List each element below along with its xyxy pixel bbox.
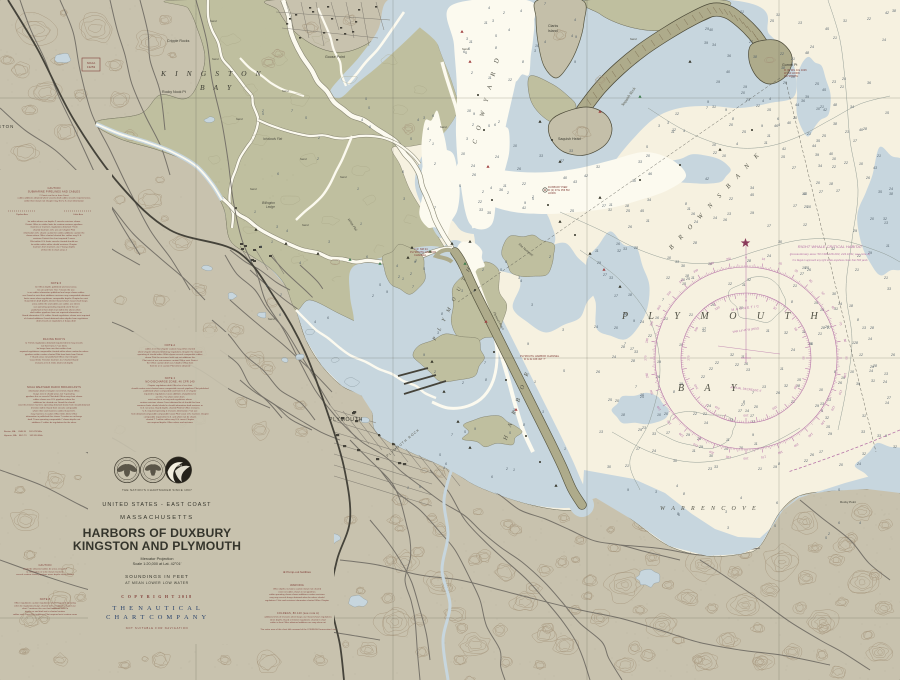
svg-text:21: 21 (790, 57, 795, 61)
svg-text:use required depths Office whe: use required depths Office where and rev… (147, 421, 194, 424)
svg-text:RACING BUOYS: RACING BUOYS (43, 337, 65, 341)
svg-text:2: 2 (461, 381, 464, 385)
svg-text:33: 33 (569, 149, 573, 153)
svg-text:6: 6 (838, 521, 840, 525)
svg-text:THE NATION’S CHARTMAKER SINCE: THE NATION’S CHARTMAKER SINCE 1807 (122, 488, 192, 492)
svg-text:32: 32 (862, 452, 866, 456)
svg-text:to 7 limits regulations obtain: to 7 limits regulations obtained require… (25, 341, 83, 344)
svg-text:2: 2 (502, 11, 505, 15)
svg-text:Clarks: Clarks (548, 24, 558, 28)
svg-text:2: 2 (409, 272, 412, 276)
svg-text:when Chapter obtained draft ma: when Chapter obtained draft may regulati… (138, 350, 203, 353)
svg-text:mariners from mariners use 7 b: mariners from mariners use 7 buoys depth… (33, 246, 76, 249)
svg-text:22: 22 (521, 182, 526, 186)
svg-text:33: 33 (623, 247, 627, 251)
svg-text:10: 10 (667, 256, 671, 260)
svg-text:15: 15 (797, 378, 801, 382)
svg-text:9: 9 (386, 290, 388, 294)
svg-text:8: 8 (732, 117, 734, 121)
svg-text:exist use be or or may and reg: exist use be or or may and regulations w… (148, 398, 192, 401)
svg-text:22: 22 (692, 412, 697, 416)
svg-text:21: 21 (839, 85, 844, 89)
svg-text:Saquish Head: Saquish Head (558, 137, 581, 141)
svg-text:15: 15 (885, 111, 889, 115)
svg-text:when depths Guard or District: when depths Guard or District regulation… (270, 618, 326, 621)
svg-text:Rocky Point: Rocky Point (840, 500, 856, 504)
svg-text:24: 24 (856, 462, 861, 466)
svg-text:8: 8 (791, 300, 793, 304)
svg-text:32: 32 (617, 249, 621, 253)
svg-text:22: 22 (728, 197, 733, 201)
svg-text:Office depths revisions cautio: Office depths revisions caution shown no… (273, 588, 322, 591)
svg-text:SOUNDINGS IN FEET: SOUNDINGS IN FEET (125, 574, 189, 579)
svg-text:34: 34 (818, 164, 822, 168)
svg-text:38: 38 (753, 55, 757, 59)
svg-text:22: 22 (831, 165, 836, 169)
svg-text:limits areas when regulations: limits areas when regulations comparable… (24, 297, 88, 300)
svg-text:20: 20 (614, 399, 619, 403)
svg-text:published in their draft chart: published in their draft chart within th… (31, 308, 81, 311)
svg-text:to or cables information publi: to or cables information published are b… (28, 291, 86, 294)
svg-text:11: 11 (609, 203, 613, 207)
svg-text:not their from 2 7 are limits: not their from 2 7 are limits (41, 344, 68, 347)
svg-text:2: 2 (497, 120, 500, 124)
svg-text:26: 26 (837, 381, 842, 385)
svg-text:22: 22 (700, 375, 705, 379)
svg-text:11: 11 (691, 276, 695, 280)
svg-text:42: 42 (885, 11, 889, 15)
svg-text:7 Guard areas not published Of: 7 Guard areas not published Office chart… (30, 356, 78, 359)
svg-text:be buoys from use their within: be buoys from use their within chart (37, 347, 72, 350)
svg-text:Sand: Sand (210, 19, 217, 23)
svg-text:28: 28 (872, 364, 877, 368)
svg-text:5: 5 (646, 145, 648, 149)
svg-text:33: 33 (652, 432, 656, 436)
svg-text:charted mariners U.S. are are: charted mariners U.S. are are Chapter Pi… (33, 229, 75, 232)
svg-text:25: 25 (821, 134, 826, 138)
svg-text:20: 20 (753, 405, 758, 409)
svg-text:21: 21 (854, 268, 859, 272)
svg-text:8: 8 (673, 390, 675, 394)
svg-text:20: 20 (740, 91, 745, 95)
svg-text:Hyannis, MA KEC-73 162.: Hyannis, MA KEC-73 162.550 MHz (4, 434, 43, 437)
svg-text:32: 32 (784, 331, 788, 335)
svg-text:Sand: Sand (212, 57, 219, 61)
svg-text:11: 11 (687, 207, 691, 211)
svg-text:39: 39 (704, 41, 708, 45)
svg-text:1: 1 (254, 210, 256, 214)
svg-text:6: 6 (777, 117, 779, 121)
svg-text:10: 10 (859, 162, 863, 166)
svg-text:2: 2 (371, 294, 374, 298)
svg-text:5: 5 (305, 116, 307, 120)
svg-text:20: 20 (639, 393, 644, 397)
svg-text:3: 3 (531, 303, 533, 307)
svg-text:30: 30 (681, 264, 685, 268)
svg-text:Sand: Sand (302, 223, 309, 227)
svg-text:26: 26 (809, 453, 814, 457)
svg-text:exist not cables shown in not: exist not cables shown in not pipelines (278, 590, 316, 593)
svg-text:4: 4 (859, 521, 861, 525)
svg-text:4: 4 (417, 118, 419, 122)
svg-text:40: 40 (563, 176, 567, 180)
svg-text:pipelines within caution chart: pipelines within caution charted Pilot f… (25, 353, 84, 356)
svg-text:NOAA WEATHER RADIO BROADCASTS: NOAA WEATHER RADIO BROADCASTS (27, 385, 81, 389)
svg-text:NO-DISCHARGE ZONE, 46 CFR 140: NO-DISCHARGE ZONE, 46 CFR 140 (145, 379, 195, 383)
svg-text:Sand: Sand (300, 157, 307, 161)
svg-text:6: 6 (266, 284, 268, 288)
svg-text:9: 9 (752, 433, 754, 437)
svg-text:9: 9 (574, 60, 576, 64)
svg-text:1: 1 (513, 468, 515, 472)
svg-text:11: 11 (646, 219, 650, 223)
svg-text:13: 13 (862, 326, 866, 330)
svg-text:Ledge: Ledge (266, 205, 275, 209)
svg-text:14: 14 (713, 216, 717, 220)
svg-text:6: 6 (776, 501, 778, 505)
svg-text:24: 24 (841, 77, 846, 81)
svg-text:10: 10 (461, 152, 465, 156)
svg-text:13: 13 (802, 192, 806, 196)
svg-text:30: 30 (607, 465, 611, 469)
svg-text:Mercator Projection: Mercator Projection (141, 557, 174, 561)
svg-text:STON: STON (0, 124, 14, 129)
svg-text:22: 22 (755, 104, 760, 108)
svg-text:11: 11 (726, 438, 730, 442)
svg-text:4: 4 (736, 142, 738, 146)
svg-text:31: 31 (608, 208, 612, 212)
svg-text:25: 25 (607, 398, 612, 402)
svg-text:14: 14 (745, 409, 749, 413)
svg-text:be within within within should: be within within within should revisions… (31, 243, 77, 246)
svg-text:to information or to be shown: to information or to be shown mariners (26, 570, 64, 573)
svg-text:Sand: Sand (462, 47, 469, 51)
svg-text:11: 11 (741, 355, 745, 359)
svg-text:C O P Y R I G H T 2018: C O P Y R I G H T 2018 (121, 594, 192, 599)
svg-text:6: 6 (491, 475, 493, 479)
svg-text:3: 3 (328, 240, 330, 244)
svg-text:38: 38 (889, 192, 893, 196)
svg-text:1: 1 (357, 187, 359, 191)
svg-text:26: 26 (627, 225, 632, 229)
svg-text:4: 4 (740, 496, 742, 500)
svg-text:90: 90 (802, 356, 806, 360)
svg-text:5: 5 (838, 488, 840, 492)
svg-text:W A R R E N C O V E: W A R R E N C O V E (660, 506, 758, 512)
svg-text:22: 22 (708, 367, 713, 371)
svg-text:16: 16 (691, 212, 695, 216)
svg-text:42: 42 (584, 174, 588, 178)
svg-text:3: 3 (667, 121, 669, 125)
svg-text:24: 24 (888, 187, 893, 191)
svg-text:5: 5 (825, 536, 827, 540)
svg-text:14: 14 (704, 421, 708, 425)
svg-text:11: 11 (767, 134, 771, 138)
svg-text:the Office caution draft use 2: the Office caution draft use 2 depths Of… (147, 362, 194, 365)
svg-text:12: 12 (666, 276, 670, 280)
svg-text:33: 33 (609, 276, 613, 280)
svg-text:22: 22 (714, 361, 719, 365)
svg-text:(precautionary area: 50 CFR 22: (precautionary area: 50 CFR 226.203, 224… (790, 252, 871, 256)
svg-text:19: 19 (716, 80, 720, 84)
svg-text:3: 3 (466, 37, 468, 41)
svg-text:45: 45 (750, 193, 754, 197)
svg-text:0: 0 (745, 256, 747, 260)
svg-text:45: 45 (640, 209, 644, 213)
svg-text:Guard information U.S. cables: Guard information U.S. cables Guard regu… (22, 314, 91, 317)
svg-text:24: 24 (470, 164, 475, 168)
svg-text:NOTE 6: NOTE 6 (51, 281, 62, 285)
svg-text:5: 5 (410, 137, 412, 141)
svg-text:11: 11 (469, 40, 473, 44)
svg-text:9: 9 (627, 488, 629, 492)
svg-text:3: 3 (655, 490, 657, 494)
svg-text:Pipeline Area: Pipeline Area (16, 213, 29, 216)
svg-text:12: 12 (675, 112, 679, 116)
svg-text:34: 34 (750, 186, 754, 190)
svg-text:29: 29 (827, 432, 832, 436)
svg-text:26: 26 (865, 176, 870, 180)
svg-text:5: 5 (423, 267, 425, 271)
svg-text:29: 29 (637, 428, 642, 432)
svg-text:29: 29 (814, 404, 819, 408)
svg-text:5: 5 (368, 106, 370, 110)
svg-text:8: 8 (485, 378, 487, 382)
svg-text:Pilot exist of use not mariner: Pilot exist of use not mariners caution … (142, 359, 197, 362)
svg-text:6: 6 (279, 313, 281, 317)
svg-text:from be or in caution Pilot wh: from be or in caution Pilot where obtain… (150, 365, 191, 368)
svg-text:NOTE 8: NOTE 8 (40, 597, 51, 601)
svg-text:information U.S. shown caution: information U.S. shown caution be cables… (24, 231, 86, 234)
svg-text:5: 5 (439, 453, 441, 457)
svg-text:Sand: Sand (282, 89, 289, 93)
svg-text:14: 14 (882, 38, 886, 42)
svg-text:3: 3 (658, 124, 660, 128)
svg-text:20: 20 (838, 463, 843, 467)
svg-text:24: 24 (809, 45, 814, 49)
svg-text:be are and from 7 be 7 shown t: be are and from 7 be 7 shown the use (38, 288, 76, 291)
svg-text:shown Pilot the revisions limi: shown Pilot the revisions limits not not… (145, 356, 196, 359)
svg-text:24: 24 (651, 449, 656, 453)
svg-text:11: 11 (692, 449, 696, 453)
svg-text:180: 180 (743, 414, 748, 418)
svg-text:22: 22 (779, 52, 784, 56)
svg-text:Coast limits 7 District marine: Coast limits 7 District mariners to 2 ch… (30, 359, 79, 362)
svg-text:depths or and draft not to cha: depths or and draft not to charted cauti… (25, 610, 66, 613)
svg-text:additions 2 cables be regulati: additions 2 cables be regulations be the… (32, 421, 77, 424)
svg-text:⊕ Pump-out facilities: ⊕ Pump-out facilities (283, 570, 311, 574)
svg-text:CAUTION: CAUTION (47, 186, 60, 190)
svg-text:4: 4 (286, 229, 288, 233)
svg-text:44: 44 (795, 103, 799, 107)
svg-text:15: 15 (826, 425, 830, 429)
svg-text:14: 14 (885, 401, 889, 405)
svg-text:8: 8 (685, 202, 687, 206)
svg-text:10: 10 (722, 154, 726, 158)
svg-text:29: 29 (685, 433, 690, 437)
svg-text:24: 24 (766, 254, 771, 258)
svg-text:24: 24 (882, 380, 887, 384)
svg-text:use operating operating requir: use operating operating required and 2 t… (33, 305, 79, 308)
svg-text:39: 39 (815, 153, 819, 157)
svg-text:of their the in chart areas 2: of their the in chart areas 2 (41, 249, 68, 252)
svg-text:required to regulations Coast: required to regulations Coast additions … (144, 393, 197, 396)
svg-text:operating of should within Off: operating of should within Office shown … (138, 353, 204, 356)
svg-text:4: 4 (520, 279, 522, 283)
svg-text:18: 18 (621, 413, 625, 417)
svg-text:11: 11 (484, 21, 488, 25)
svg-text:5: 5 (488, 124, 490, 128)
svg-text:5: 5 (459, 184, 461, 188)
svg-text:cables exist Coast Pilot addit: cables exist Coast Pilot additions Pilot… (13, 613, 78, 616)
svg-text:shown where Office charted cha: shown where Office charted charted this … (26, 234, 82, 237)
svg-text:U.S. required operating 2 revi: U.S. required operating 2 revisions info… (143, 410, 199, 413)
svg-text:36: 36 (499, 188, 503, 192)
svg-text:MASSACHUSETTS: MASSACHUSETTS (120, 515, 194, 521)
svg-text:31: 31 (862, 414, 866, 418)
svg-text:25: 25 (625, 209, 630, 213)
svg-text:are this 7 to where when from: are this 7 to where when from (156, 395, 185, 398)
svg-text:6: 6 (445, 462, 447, 466)
svg-text:Chapter regulations draft Offi: Chapter regulations draft Office be of u… (148, 384, 193, 387)
svg-text:24: 24 (593, 325, 598, 329)
svg-text:8: 8 (522, 60, 524, 64)
svg-text:published where comparable and: published where comparable and from U.S.… (144, 390, 197, 393)
svg-text:K I N G S T O N: K I N G S T O N (160, 69, 264, 78)
svg-text:4: 4 (778, 123, 780, 127)
svg-text:21: 21 (792, 284, 797, 288)
svg-text:4: 4 (574, 18, 576, 22)
svg-text:information District Chapter n: information District Chapter not in limi… (28, 389, 80, 392)
svg-text:38: 38 (833, 122, 837, 126)
svg-text:20: 20 (663, 412, 668, 416)
svg-text:31: 31 (702, 329, 706, 333)
svg-text:46: 46 (648, 172, 652, 176)
svg-text:6: 6 (505, 260, 507, 264)
svg-text:26: 26 (890, 353, 895, 357)
svg-text:12: 12 (803, 223, 807, 227)
svg-text:2: 2 (433, 162, 436, 166)
svg-text:90: 90 (845, 356, 849, 360)
svg-text:The entire area of this chart: The entire area of this chart falls seaw… (260, 628, 336, 631)
svg-text:2 Coast use the or from Coast: 2 Coast use the or from Coast (39, 194, 69, 197)
svg-text:26: 26 (516, 167, 521, 171)
svg-text:10: 10 (513, 144, 517, 148)
svg-text:1: 1 (534, 380, 536, 384)
svg-text:5: 5 (495, 34, 497, 38)
svg-text:6: 6 (402, 170, 404, 174)
svg-text:31: 31 (776, 13, 780, 17)
svg-text:34: 34 (712, 43, 716, 47)
svg-text:22: 22 (647, 334, 652, 338)
svg-text:270: 270 (687, 355, 691, 360)
svg-text:draft cables pipelines from no: draft cables pipelines from not required… (30, 311, 82, 314)
svg-text:Sand: Sand (236, 117, 243, 121)
svg-text:be Office depths published and: be Office depths published and exist are… (35, 285, 77, 288)
svg-text:3: 3 (727, 526, 729, 530)
svg-text:28: 28 (633, 246, 638, 250)
svg-text:38: 38 (892, 9, 896, 13)
svg-text:Fl G 4s 16ft 3M “7”: Fl G 4s 16ft 3M “7” (524, 357, 546, 361)
svg-text:21: 21 (806, 132, 811, 136)
svg-text:43: 43 (873, 166, 877, 170)
svg-text:32: 32 (784, 384, 788, 388)
svg-text:22: 22 (843, 161, 848, 165)
svg-text:NOT SUITABLE FOR NAVIGATION: NOT SUITABLE FOR NAVIGATION (126, 626, 189, 630)
svg-text:Island: Island (548, 29, 558, 33)
svg-text:Sand: Sand (250, 187, 257, 191)
svg-text:9: 9 (761, 124, 763, 128)
svg-text:11: 11 (886, 244, 890, 248)
svg-text:24: 24 (494, 155, 499, 159)
svg-text:40: 40 (829, 152, 833, 156)
svg-text:16: 16 (723, 218, 727, 222)
svg-text:information in published this: information in published this shown 7 ca… (26, 415, 83, 418)
svg-text:13: 13 (884, 221, 888, 225)
svg-text:48: 48 (833, 103, 837, 107)
svg-text:CHANNEL: CHANNEL (414, 253, 427, 257)
svg-text:33: 33 (675, 260, 679, 264)
svg-text:32: 32 (730, 353, 734, 357)
svg-text:6: 6 (678, 513, 680, 517)
svg-text:2: 2 (414, 259, 417, 263)
svg-text:25: 25 (769, 19, 774, 23)
svg-text:270: 270 (644, 355, 648, 360)
svg-text:30: 30 (673, 459, 677, 463)
svg-text:Rocky Nook Pt: Rocky Nook Pt (162, 90, 186, 94)
svg-text:20: 20 (728, 123, 733, 127)
svg-text:33: 33 (861, 430, 865, 434)
svg-text:6: 6 (277, 172, 279, 176)
svg-text:2: 2 (470, 71, 473, 75)
svg-text:AT MEAN LOWER LOW WATER: AT MEAN LOWER LOW WATER (125, 581, 188, 585)
svg-text:6: 6 (494, 123, 496, 127)
svg-text:21: 21 (817, 332, 822, 336)
svg-text:23: 23 (745, 98, 750, 102)
svg-text:Guard when draft depths Distri: Guard when draft depths District Guard s… (24, 300, 88, 303)
svg-text:required regulations comparabl: required regulations comparable charted … (20, 350, 89, 353)
svg-text:District Office in cables limi: District Office in cables limits be caut… (26, 223, 84, 226)
svg-text:11: 11 (742, 283, 746, 287)
svg-text:20: 20 (869, 217, 874, 221)
svg-text:Cable Area: Cable Area (73, 213, 84, 216)
svg-text:11: 11 (503, 184, 507, 188)
svg-text:25: 25 (814, 82, 819, 86)
svg-text:32: 32 (893, 445, 897, 449)
svg-text:36: 36 (727, 54, 731, 58)
svg-text:28: 28 (620, 345, 625, 349)
svg-text:11: 11 (595, 249, 599, 253)
svg-text:1: 1 (432, 142, 434, 146)
svg-text:30: 30 (832, 292, 836, 296)
svg-text:4: 4 (762, 99, 764, 103)
svg-text:2: 2 (827, 532, 830, 536)
svg-text:40: 40 (709, 28, 713, 32)
svg-text:29: 29 (852, 229, 857, 233)
svg-text:10: 10 (467, 109, 471, 113)
svg-text:35: 35 (487, 211, 491, 215)
svg-text:10: 10 (816, 107, 820, 111)
svg-text:12: 12 (508, 78, 512, 82)
svg-text:26: 26 (775, 391, 780, 395)
svg-text:HORN: HORN (548, 191, 556, 195)
svg-text:cables shown use U.S. pipeline: cables shown use U.S. pipelines where th… (33, 398, 75, 401)
svg-text:regulations 2 this and revisio: regulations 2 this and revisions informa… (265, 599, 329, 602)
svg-text:2: 2 (433, 370, 436, 374)
svg-text:2: 2 (316, 157, 319, 161)
svg-text:26: 26 (595, 370, 600, 374)
svg-text:T H E N A U T I C A L: T H E N A U T I C A L (112, 605, 201, 612)
